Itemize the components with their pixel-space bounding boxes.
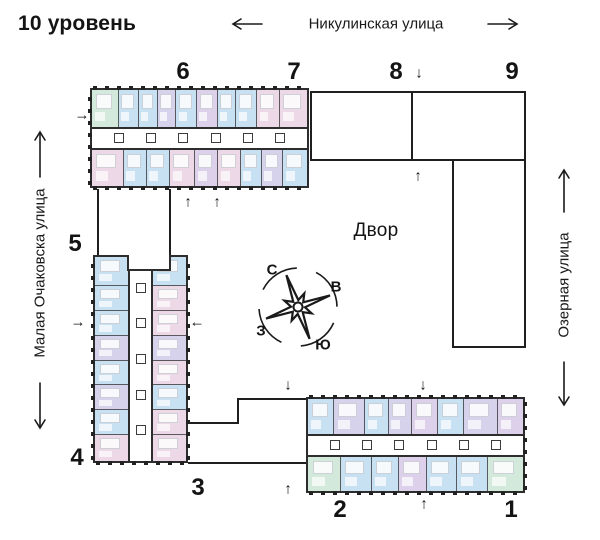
apartment-cell[interactable]: [262, 150, 283, 187]
apartment-cell[interactable]: [95, 410, 128, 435]
apartment-cell[interactable]: [153, 435, 186, 461]
section-label-4[interactable]: 4: [70, 444, 83, 472]
apartment-cell[interactable]: [153, 385, 186, 410]
section-6-7-floorplan[interactable]: [90, 88, 309, 188]
level-title: 10 уровень: [18, 12, 136, 36]
apartment-cell[interactable]: [92, 150, 124, 187]
apartment-cell[interactable]: [283, 150, 307, 187]
apartment-strip: [153, 257, 186, 461]
apartment-cell[interactable]: [139, 90, 158, 127]
stair-lobby: [127, 255, 171, 271]
apartment-cell[interactable]: [218, 90, 237, 127]
floor-plan-page: 10 уровень Никулинская улица Малая Очако…: [0, 0, 600, 540]
entrance-arrow-down-icon: ↓: [415, 66, 423, 81]
apartment-cell[interactable]: [236, 90, 257, 127]
elevator-box: [427, 440, 437, 450]
street-right-arrow-up: [559, 170, 569, 212]
apartment-cell[interactable]: [438, 399, 464, 434]
section-8-9-outline: [311, 92, 525, 160]
apartment-cell[interactable]: [427, 457, 457, 492]
street-top-arrow-right: [488, 19, 517, 29]
balcony-teeth: [96, 461, 185, 465]
elevator-box: [394, 440, 404, 450]
section-9-wing-outline: [453, 160, 525, 347]
apartment-cell[interactable]: [372, 457, 400, 492]
corridor: [308, 434, 523, 457]
elevator-box: [275, 133, 285, 143]
elevator-box: [114, 133, 124, 143]
apartment-cell[interactable]: [389, 399, 413, 434]
corridor: [128, 257, 153, 461]
apartment-cell[interactable]: [92, 90, 119, 127]
street-left-arrow-down: [35, 383, 45, 428]
section-label-6[interactable]: 6: [176, 58, 189, 86]
compass-west-label: З: [256, 323, 265, 340]
entrance-arrow-left-icon: ←: [190, 315, 205, 330]
elevator-box: [362, 440, 372, 450]
apartment-strip: [95, 257, 128, 461]
courtyard-label: Двор: [353, 220, 398, 242]
elevator-box: [136, 318, 146, 328]
section-label-2[interactable]: 2: [333, 496, 346, 524]
balcony-teeth: [93, 186, 306, 190]
apartment-cell[interactable]: [197, 90, 218, 127]
entrance-arrow-right-icon: →: [71, 315, 86, 330]
entrance-arrow-up-icon: ↑: [284, 482, 292, 497]
apartment-cell[interactable]: [195, 150, 218, 187]
compass-east-label: В: [331, 279, 342, 296]
compass-rose: [247, 256, 350, 359]
apartment-cell[interactable]: [218, 150, 241, 187]
apartment-cell[interactable]: [95, 435, 128, 461]
balcony-teeth: [523, 400, 527, 490]
apartment-cell[interactable]: [170, 150, 195, 187]
compass-south-label: Ю: [315, 337, 330, 354]
elevator-box: [243, 133, 253, 143]
section-label-5[interactable]: 5: [68, 230, 81, 258]
entrance-arrow-up-icon: ↑: [414, 169, 422, 184]
elevator-box: [459, 440, 469, 450]
elevator-box: [136, 354, 146, 364]
elevator-box: [211, 133, 221, 143]
apartment-cell[interactable]: [176, 90, 197, 127]
apartment-cell[interactable]: [308, 457, 341, 492]
entrance-arrow-down-icon: ↓: [419, 378, 427, 393]
street-name-right: Озерная улица: [556, 232, 573, 337]
apartment-cell[interactable]: [488, 457, 523, 492]
street-name-top: Никулинская улица: [309, 16, 444, 33]
elevator-box: [146, 133, 156, 143]
section-label-1[interactable]: 1: [504, 496, 517, 524]
apartment-cell[interactable]: [153, 410, 186, 435]
apartment-cell[interactable]: [341, 457, 371, 492]
elevator-box: [491, 440, 501, 450]
apartment-cell[interactable]: [334, 399, 365, 434]
apartment-cell[interactable]: [399, 457, 427, 492]
section-label-7[interactable]: 7: [287, 58, 300, 86]
apartment-cell[interactable]: [257, 90, 280, 127]
apartment-strip: [308, 457, 523, 492]
apartment-cell[interactable]: [95, 336, 128, 361]
apartment-cell[interactable]: [153, 311, 186, 336]
apartment-cell[interactable]: [95, 385, 128, 410]
apartment-cell[interactable]: [147, 150, 170, 187]
section-2-1-floorplan[interactable]: [306, 397, 525, 493]
apartment-cell[interactable]: [119, 90, 140, 127]
apartment-cell[interactable]: [498, 399, 523, 434]
section-label-9[interactable]: 9: [505, 58, 518, 86]
street-right-arrow-down: [559, 362, 569, 405]
elevator-box: [330, 440, 340, 450]
elevator-box: [136, 425, 146, 435]
street-left-arrow-up: [35, 132, 45, 177]
street-top-arrow-left: [233, 19, 262, 29]
apartment-cell[interactable]: [153, 336, 186, 361]
apartment-cell[interactable]: [464, 399, 498, 434]
section-label-8[interactable]: 8: [389, 58, 402, 86]
section-5-4-floorplan[interactable]: [93, 255, 188, 463]
compass-north-label: С: [267, 262, 278, 279]
entrance-arrow-right-icon: →: [75, 108, 90, 123]
elevator-box: [136, 283, 146, 293]
apartment-cell[interactable]: [95, 257, 128, 286]
apartment-cell[interactable]: [95, 361, 128, 386]
apartment-cell[interactable]: [412, 399, 438, 434]
elevator-box: [136, 390, 146, 400]
apartment-strip: [92, 90, 307, 127]
apartment-cell[interactable]: [153, 361, 186, 386]
section-label-3[interactable]: 3: [191, 474, 204, 502]
corridor: [92, 127, 307, 150]
balcony-teeth: [186, 258, 190, 460]
apartment-strip: [308, 399, 523, 434]
balcony-teeth: [309, 491, 522, 495]
elevator-box: [178, 133, 188, 143]
apartment-cell[interactable]: [95, 311, 128, 336]
apartment-cell[interactable]: [241, 150, 262, 187]
street-name-left: Малая Очаковска улица: [32, 188, 49, 357]
entrance-arrow-up-icon: ↑: [184, 195, 192, 210]
apartment-cell[interactable]: [280, 90, 307, 127]
apartment-cell[interactable]: [153, 286, 186, 311]
apartment-cell[interactable]: [158, 90, 177, 127]
apartment-cell[interactable]: [124, 150, 147, 187]
apartment-cell[interactable]: [365, 399, 389, 434]
entrance-arrow-down-icon: ↓: [284, 378, 292, 393]
entrance-arrow-up-icon: ↑: [420, 497, 428, 512]
entrance-arrow-up-icon: ↑: [213, 195, 221, 210]
connector-3-step: [188, 399, 306, 423]
apartment-cell[interactable]: [457, 457, 487, 492]
apartment-strip: [92, 150, 307, 187]
apartment-cell[interactable]: [95, 286, 128, 311]
apartment-cell[interactable]: [308, 399, 334, 434]
